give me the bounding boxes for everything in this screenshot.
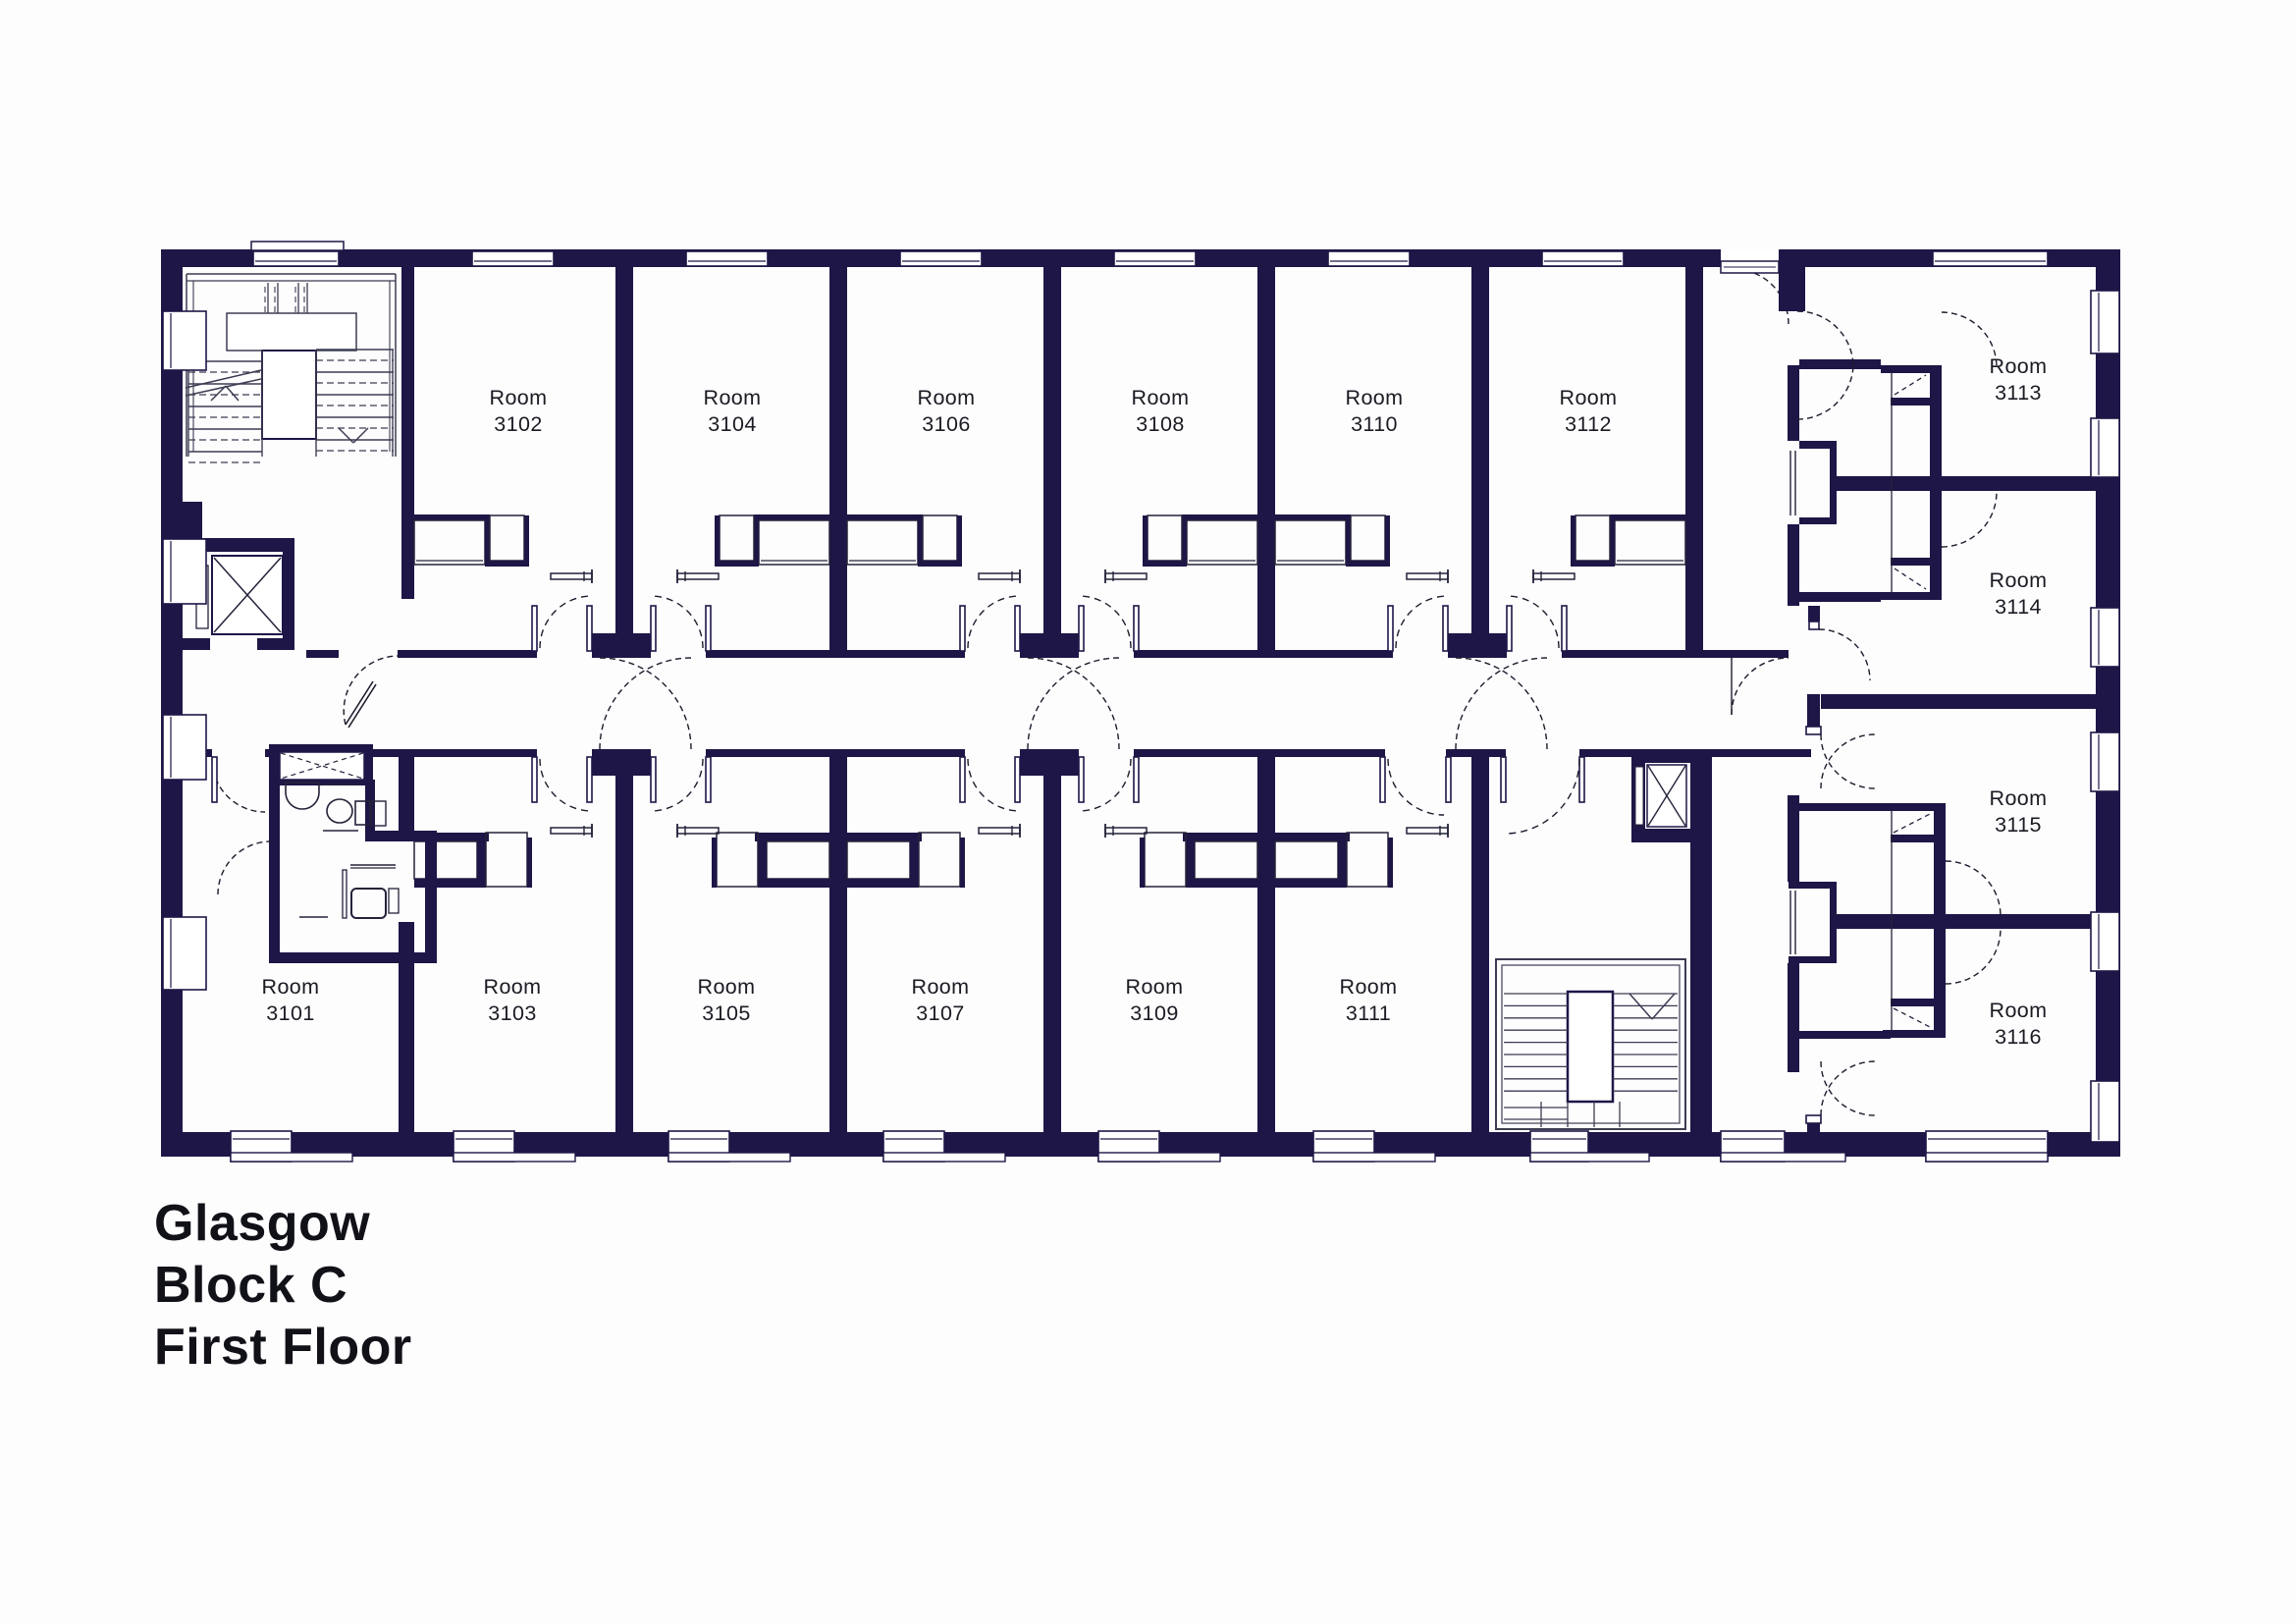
svg-text:3107: 3107 [916, 1001, 964, 1025]
svg-text:3112: 3112 [1565, 412, 1612, 436]
svg-text:First Floor: First Floor [154, 1319, 412, 1376]
svg-text:3102: 3102 [494, 412, 542, 436]
svg-text:Room: Room [1132, 386, 1190, 409]
svg-text:Room: Room [1346, 386, 1404, 409]
svg-text:3115: 3115 [1995, 813, 2042, 837]
svg-text:Room: Room [1990, 786, 2048, 810]
svg-text:Room: Room [698, 975, 756, 999]
svg-text:Room: Room [1990, 354, 2048, 378]
svg-text:Room: Room [262, 975, 320, 999]
svg-text:Room: Room [1560, 386, 1618, 409]
svg-text:Glasgow: Glasgow [154, 1195, 370, 1252]
svg-text:3101: 3101 [266, 1001, 314, 1025]
svg-text:3108: 3108 [1136, 412, 1184, 436]
svg-text:3109: 3109 [1130, 1001, 1178, 1025]
svg-text:3105: 3105 [702, 1001, 750, 1025]
svg-text:3114: 3114 [1995, 595, 2042, 619]
svg-text:Room: Room [918, 386, 976, 409]
svg-text:Room: Room [1340, 975, 1398, 999]
svg-text:3106: 3106 [922, 412, 970, 436]
svg-text:3104: 3104 [708, 412, 756, 436]
svg-text:Room: Room [490, 386, 548, 409]
svg-text:3116: 3116 [1995, 1025, 2042, 1049]
svg-text:Room: Room [1126, 975, 1184, 999]
svg-text:Room: Room [704, 386, 762, 409]
svg-text:3103: 3103 [488, 1001, 536, 1025]
svg-text:Room: Room [1990, 999, 2048, 1022]
svg-text:Room: Room [1990, 568, 2048, 592]
svg-text:3113: 3113 [1995, 381, 2042, 405]
svg-text:Room: Room [484, 975, 542, 999]
svg-text:3111: 3111 [1346, 1001, 1391, 1025]
svg-text:Room: Room [912, 975, 970, 999]
svg-text:Block C: Block C [154, 1257, 347, 1314]
svg-text:3110: 3110 [1351, 412, 1398, 436]
